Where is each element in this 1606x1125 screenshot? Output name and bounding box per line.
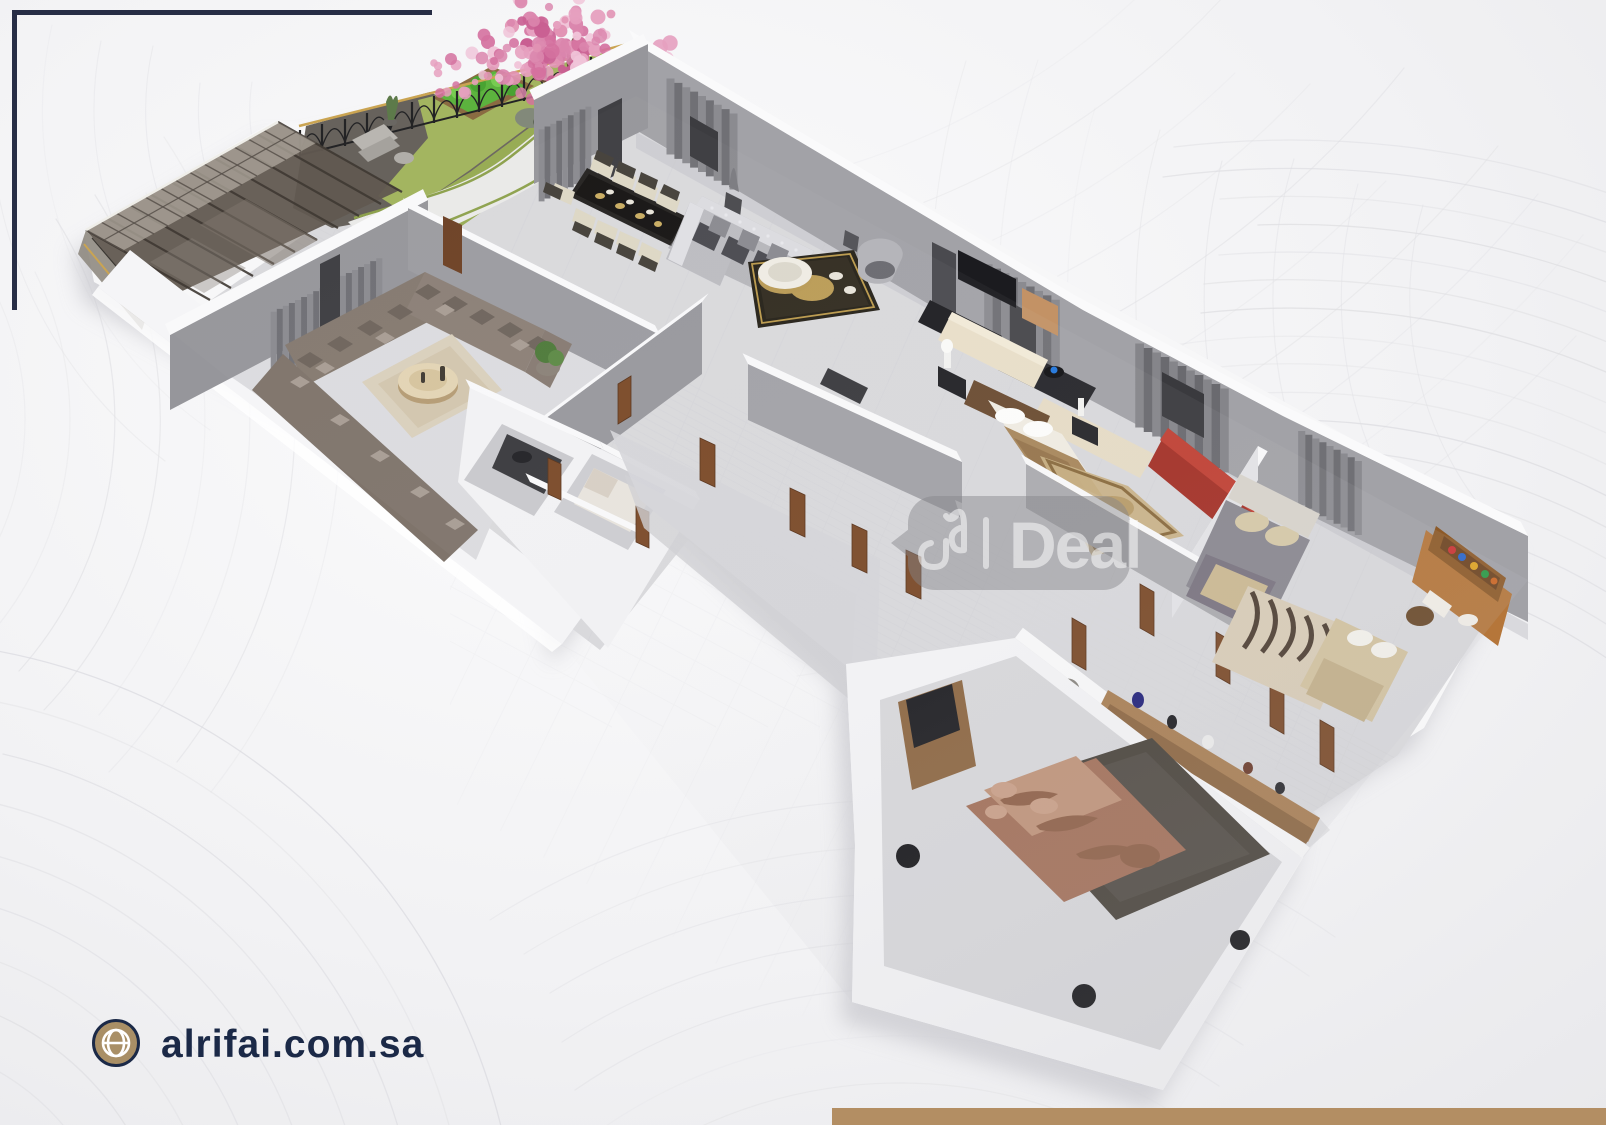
svg-text:Deal: Deal — [1009, 508, 1140, 582]
